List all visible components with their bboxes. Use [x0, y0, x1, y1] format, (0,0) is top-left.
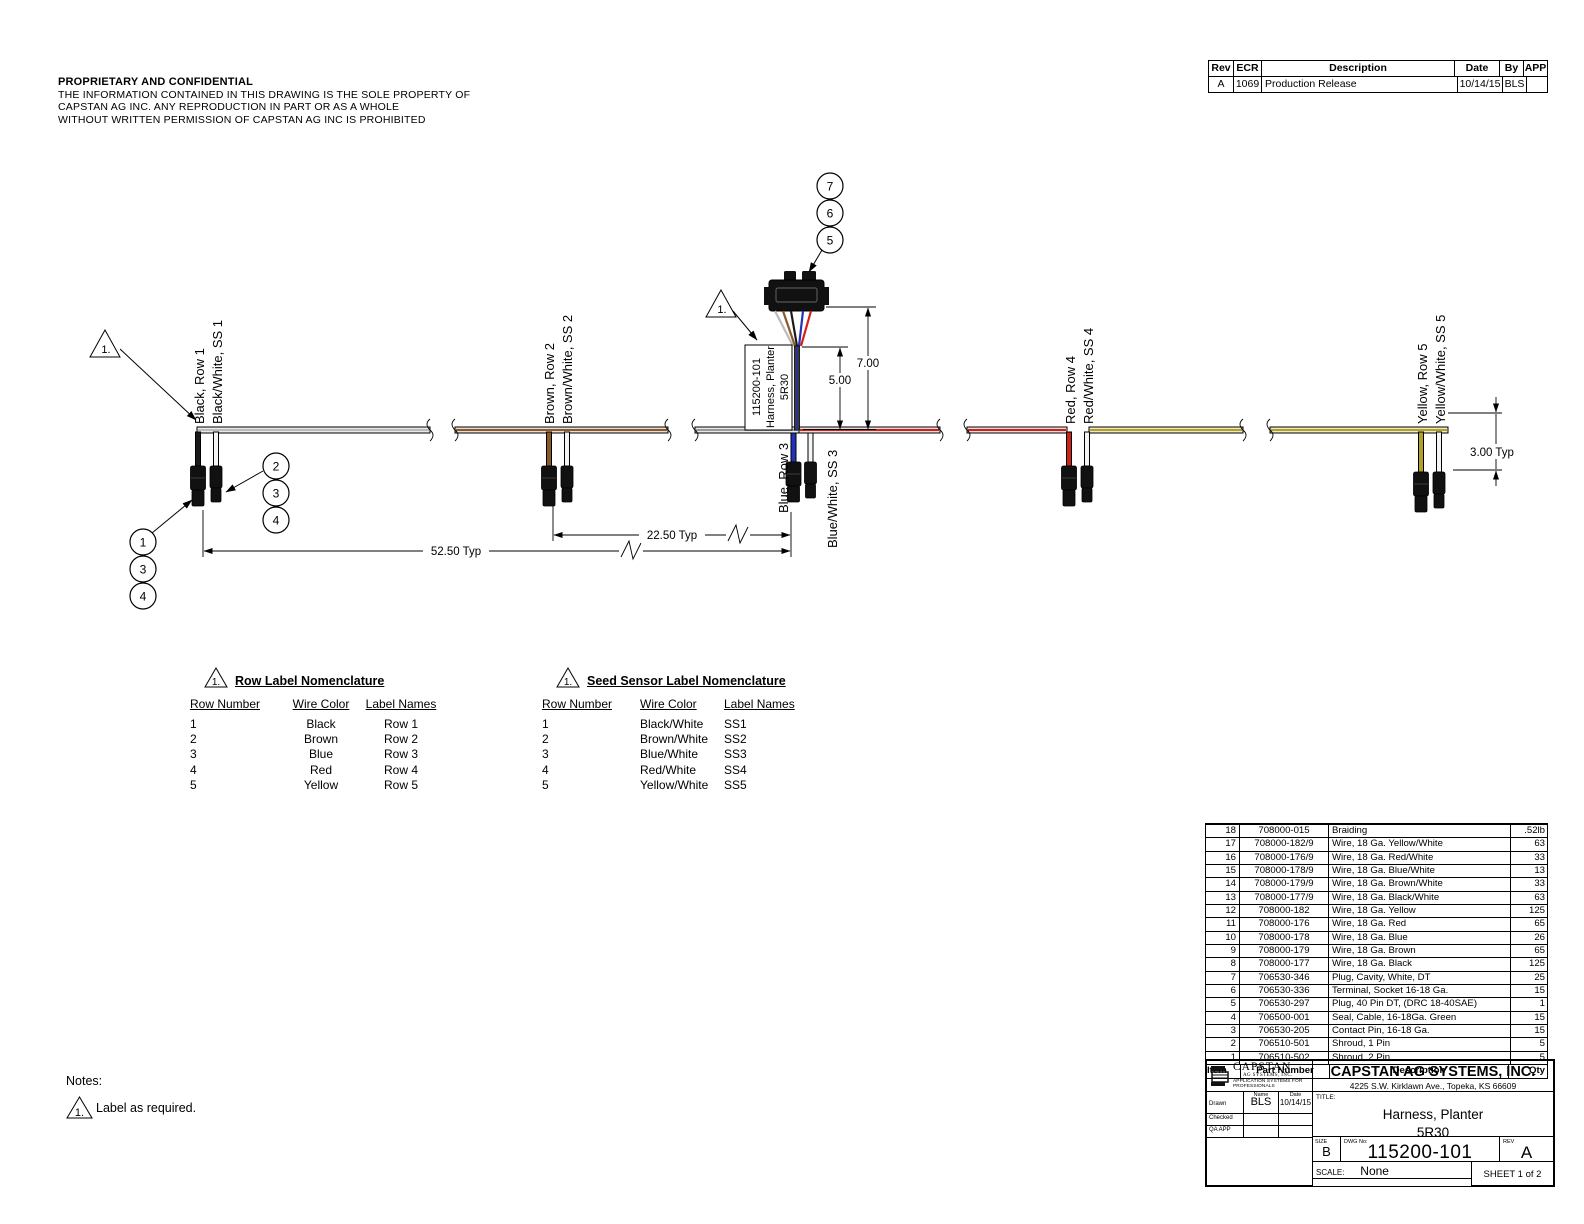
bom-row: 12 708000-182 Wire, 18 Ga. Yellow 125: [1206, 904, 1547, 917]
connector-row2: [542, 466, 557, 506]
balloon-2-leader: [226, 471, 263, 492]
bom-row: 9 708000-179 Wire, 18 Ga. Brown 65: [1206, 944, 1547, 957]
bom-row: 2 706510-501 Shroud, 1 Pin 5: [1206, 1037, 1547, 1050]
row-nomenclature-rows: 1 Black Row 1 2 Brown Row 2 3 Blue Row 3…: [190, 717, 442, 793]
ss3-label: Blue/White, SS 3: [825, 450, 840, 548]
drawn-date-cell: Date 10/14/15: [1278, 1091, 1313, 1114]
drawn-label-cell: Drawn: [1206, 1091, 1244, 1114]
proprietary-line3: WITHOUT WRITTEN PERMISSION OF CAPSTAN AG…: [58, 114, 426, 126]
bom-row: 6 706530-336 Terminal, Socket 16-18 Ga. …: [1206, 984, 1547, 997]
svg-text:1: 1: [140, 536, 147, 550]
balloon-7: 7: [817, 173, 843, 199]
nomenclature-row: 2 Brown Row 2: [190, 732, 442, 747]
logo-name: CAPSTAN: [1233, 1062, 1312, 1074]
connector-ss3: [805, 462, 817, 498]
dwg-number-cell: DWG No: 115200-101: [1340, 1136, 1500, 1162]
drawn-date: 10/14/15: [1279, 1098, 1312, 1107]
notes-block: Notes: 1. Label as required.: [66, 1074, 196, 1119]
revision-table-header: Rev ECR Description Date By APP: [1209, 61, 1547, 76]
row-nomenclature-table: 1. Row Label Nomenclature Row Number Wir…: [190, 666, 442, 793]
plug-40pin: [764, 271, 829, 311]
capstan-logo-icon: [1210, 1065, 1230, 1087]
company-address: 4225 S.W. Kirklawn Ave., Topeka, KS 6660…: [1313, 1081, 1553, 1091]
balloon-r2-2: 2: [263, 453, 289, 479]
dim-7-00: 7.00: [857, 358, 879, 370]
svg-text:6: 6: [827, 207, 834, 221]
company-info: CAPSTAN AG SYSTEMS, INC. 4225 S.W. Kirkl…: [1312, 1060, 1554, 1092]
balloon-6: 6: [817, 200, 843, 226]
svg-text:1.: 1.: [101, 344, 110, 356]
bom-row: 7 706530-346 Plug, Cavity, White, DT 25: [1206, 971, 1547, 984]
bom-row: 14 708000-179/9 Wire, 18 Ga. Brown/White…: [1206, 877, 1547, 890]
dim-5-00: 5.00: [829, 375, 851, 387]
nomenclature-row: 5 Yellow/White SS5: [542, 778, 802, 793]
drawn-name: BLS: [1244, 1096, 1278, 1108]
connector-row5: [1414, 472, 1429, 512]
bom-row: 16 708000-176/9 Wire, 18 Ga. Red/White 3…: [1206, 851, 1547, 864]
size-cell: SIZE B: [1312, 1136, 1341, 1162]
row4-label: Red, Row 4: [1063, 356, 1078, 424]
connector-ss5: [1433, 472, 1445, 508]
logo-subtitle: AG SYSTEMS, INC.: [1243, 1073, 1312, 1078]
proprietary-line1: THE INFORMATION CONTAINED IN THIS DRAWIN…: [58, 89, 470, 101]
bom-row: 13 708000-177/9 Wire, 18 Ga. Black/White…: [1206, 891, 1547, 904]
svg-text:1.: 1.: [717, 304, 726, 316]
notes-title: Notes:: [66, 1074, 196, 1088]
scale-value: None: [1360, 1164, 1389, 1178]
svg-text:1.: 1.: [75, 1107, 84, 1119]
sheet-cell: SHEET 1 of 2: [1471, 1161, 1554, 1186]
title-block: CAPSTAN AG SYSTEMS, INC. APPLICATION SYS…: [1205, 1059, 1555, 1187]
note-flag-icon: 1.: [556, 667, 580, 688]
part-label-line3: 5R30: [779, 374, 791, 400]
note-flags: 1. 1.: [90, 290, 757, 420]
drawing-title-cell: TITLE: Harness, Planter 5R30: [1312, 1091, 1554, 1137]
row-nomenclature-headers: Row Number Wire Color Label Names: [190, 697, 442, 711]
ss1-label: Black/White, SS 1: [210, 320, 225, 424]
note-flag-icon: 1.: [204, 667, 228, 688]
row-nomenclature-title: 1. Row Label Nomenclature: [204, 666, 442, 688]
svg-text:7: 7: [827, 180, 834, 194]
part-label-line2: Harness, Planter: [765, 346, 777, 428]
balloon-r1-3: 3: [130, 556, 156, 582]
svg-text:3: 3: [140, 563, 147, 577]
svg-text:2: 2: [273, 460, 280, 474]
rev-cell: REV A: [1499, 1136, 1554, 1162]
nomenclature-row: 5 Yellow Row 5: [190, 778, 442, 793]
company-name: CAPSTAN AG SYSTEMS, INC.: [1313, 1064, 1553, 1080]
balloon-1-leader: [152, 500, 192, 533]
sheet-number: SHEET 1 of 2: [1472, 1169, 1553, 1180]
nomenclature-row: 4 Red/White SS4: [542, 763, 802, 778]
sensor-nomenclature-headers: Row Number Wire Color Label Names: [542, 697, 802, 711]
bom-row: 15 708000-178/9 Wire, 18 Ga. Blue/White …: [1206, 864, 1547, 877]
balloon-r2-3: 3: [263, 480, 289, 506]
engineering-drawing-page: { "proprietary": { "title": "PROPRIETARY…: [0, 0, 1584, 1224]
bom-row: 17 708000-182/9 Wire, 18 Ga. Yellow/Whit…: [1206, 837, 1547, 850]
balloon-r2-4: 4: [263, 507, 289, 533]
size-value: B: [1313, 1144, 1340, 1159]
sensor-nomenclature-title: 1. Seed Sensor Label Nomenclature: [556, 666, 802, 688]
bom-rows: 18 708000-015 Braiding .52lb 17 708000-1…: [1206, 824, 1547, 1064]
plug-fanout-wires: [775, 311, 811, 346]
revision-table: Rev ECR Description Date By APP A 1069 P…: [1208, 60, 1548, 93]
row1-label: Black, Row 1: [192, 348, 207, 424]
connector-ss4: [1081, 466, 1093, 502]
flag-center: 1.: [706, 290, 757, 340]
sensor-nomenclature-rows: 1 Black/White SS1 2 Brown/White SS2 3 Bl…: [542, 717, 802, 793]
nomenclature-row: 1 Black Row 1: [190, 717, 442, 732]
connector-ss2: [561, 466, 573, 502]
drawn-name-cell: Name BLS: [1243, 1091, 1279, 1114]
nomenclature-row: 2 Brown/White SS2: [542, 732, 802, 747]
svg-text:3: 3: [273, 487, 280, 501]
note-1: 1. Label as required.: [66, 1096, 196, 1119]
connector-row1: [191, 466, 206, 506]
svg-text:1.: 1.: [564, 677, 572, 688]
bom-table: 18 708000-015 Braiding .52lb 17 708000-1…: [1205, 823, 1548, 1079]
svg-text:5: 5: [827, 234, 834, 248]
logo-tagline: APPLICATION SYSTEMS FOR PROFESSIONALS: [1233, 1080, 1312, 1090]
row2-label: Brown, Row 2: [542, 343, 557, 424]
company-logo: CAPSTAN AG SYSTEMS, INC. APPLICATION SYS…: [1206, 1060, 1313, 1092]
dwg-number: 115200-101: [1341, 1142, 1499, 1162]
sensor-nomenclature-table: 1. Seed Sensor Label Nomenclature Row Nu…: [542, 666, 802, 793]
rev-value: A: [1500, 1143, 1553, 1162]
balloon-5-leader: [809, 250, 822, 272]
row3-label: Blue, Row 3: [776, 443, 791, 513]
revision-row: A 1069 Production Release 10/14/15 BLS: [1209, 76, 1547, 92]
nomenclature-row: 3 Blue/White SS3: [542, 747, 802, 762]
nomenclature-row: 4 Red Row 4: [190, 763, 442, 778]
bom-row: 4 706500-001 Seal, Cable, 16-18Ga. Green…: [1206, 1011, 1547, 1024]
dim-52-50: 52.50 Typ: [431, 546, 481, 558]
flag-row1: 1.: [90, 330, 196, 420]
dim-22-50: 22.50 Typ: [647, 530, 697, 542]
proprietary-note: PROPRIETARY AND CONFIDENTIAL THE INFORMA…: [58, 76, 488, 126]
bom-row: 10 708000-178 Wire, 18 Ga. Blue 26: [1206, 931, 1547, 944]
bom-row: 18 708000-015 Braiding .52lb: [1206, 824, 1547, 837]
nomenclature-row: 1 Black/White SS1: [542, 717, 802, 732]
row-connectors: [191, 462, 1446, 512]
note-1-text: Label as required.: [96, 1101, 196, 1115]
proprietary-line2: CAPSTAN AG INC. ANY REPRODUCTION IN PART…: [58, 101, 399, 113]
svg-text:4: 4: [140, 590, 147, 604]
plug-bundle: [795, 346, 800, 430]
nomenclature-row: 3 Blue Row 3: [190, 747, 442, 762]
bom-row: 3 706530-205 Contact Pin, 16-18 Ga. 15: [1206, 1024, 1547, 1037]
proprietary-title: PROPRIETARY AND CONFIDENTIAL: [58, 76, 253, 88]
balloon-r1-4: 4: [130, 583, 156, 609]
scale-cell: SCALE: None: [1312, 1161, 1472, 1179]
balloon-5: 5: [817, 227, 843, 253]
row5-label: Yellow, Row 5: [1415, 344, 1430, 424]
part-label-box: 115200-101 Harness, Planter 5R30: [745, 345, 792, 430]
part-label-line1: 115200-101: [751, 358, 763, 416]
connector-ss1: [210, 466, 222, 502]
ss4-label: Red/White, SS 4: [1081, 328, 1096, 424]
ss2-label: Brown/White, SS 2: [560, 315, 575, 424]
note-flag-icon: 1.: [66, 1096, 93, 1119]
svg-text:1.: 1.: [212, 677, 220, 688]
signoff-empty-cell: [1206, 1137, 1313, 1186]
ss5-label: Yellow/White, SS 5: [1433, 315, 1448, 424]
dim-3-00: 3.00 Typ: [1470, 447, 1514, 459]
bom-row: 8 708000-177 Wire, 18 Ga. Black 125: [1206, 957, 1547, 970]
drawing-title-line1: Harness, Planter: [1313, 1106, 1553, 1124]
svg-text:4: 4: [273, 514, 280, 528]
bom-row: 11 708000-176 Wire, 18 Ga. Red 65: [1206, 917, 1547, 930]
row-drop-wires: [196, 432, 1442, 472]
connector-row4: [1062, 466, 1077, 506]
bom-row: 5 706530-297 Plug, 40 Pin DT, (DRC 18-40…: [1206, 997, 1547, 1010]
